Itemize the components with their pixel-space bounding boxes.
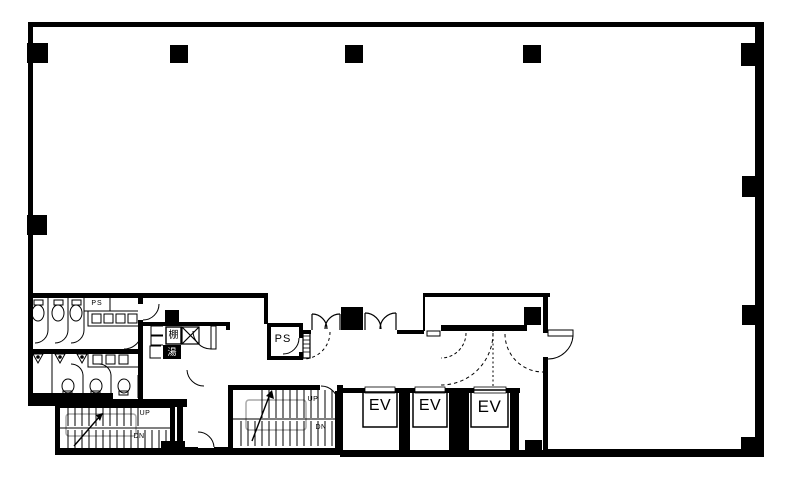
lobby-left-wall [423, 293, 425, 331]
toilet-fixtures-upper [32, 300, 82, 321]
entry-door-arc [198, 432, 214, 447]
door-jamb [427, 331, 440, 336]
sink-basin [128, 314, 137, 323]
toilet-bowl [70, 305, 82, 321]
lobby-door-swings [427, 330, 543, 388]
toilet-top-wall [28, 293, 268, 298]
main-stair-arrowhead-icon [266, 390, 274, 399]
corridor-door-opening [138, 304, 143, 320]
wall-left [28, 22, 33, 298]
main-stair-direction-arrow [252, 394, 270, 441]
ps-room-right-upper [299, 323, 303, 338]
sink-basin [92, 314, 101, 323]
main-stair-up-label: UP [303, 395, 323, 404]
corridor-door-arc [143, 304, 159, 320]
toilet-tank [54, 300, 63, 305]
kitchenette [150, 326, 216, 359]
kitchenette-door-arc [193, 331, 211, 349]
door-leaf [548, 330, 573, 336]
office-door [548, 330, 573, 359]
wall-top [28, 22, 764, 27]
door-arc [380, 313, 396, 329]
stall-door-arc [71, 330, 84, 343]
toilet-fixtures-lower [62, 379, 130, 395]
corridor-door [138, 304, 159, 320]
urinal-fixtures [33, 354, 87, 363]
column [345, 45, 363, 63]
stall-door-arc [99, 364, 111, 375]
pipe-shaft-room-label: PS [267, 330, 299, 348]
esc-stair-top-wall [55, 403, 175, 408]
column [742, 176, 756, 197]
door-arc [548, 336, 573, 359]
escape-stair-dn-label: DN [130, 432, 148, 441]
toilet-ps-label: PS [84, 297, 110, 309]
floor-plan-drawing [0, 0, 787, 501]
esc-stair-left-wall [55, 403, 60, 453]
lobby-top-wall [423, 293, 550, 297]
corridor-jog-wall [264, 297, 268, 324]
kitchenette-door-leaf [211, 326, 216, 349]
ev-bank-right-wall [510, 390, 519, 455]
wall-bottom-right [545, 449, 764, 457]
sink-basin [93, 355, 102, 364]
column [741, 437, 764, 457]
ps-room-top [267, 323, 303, 327]
lobby-counter-wall [441, 325, 527, 331]
door-arc [365, 313, 381, 329]
ev-divider-2 [449, 390, 469, 455]
sink-basin [106, 355, 115, 364]
toilet-tank [72, 300, 81, 305]
column [170, 45, 188, 63]
kitchenette-shelf-label: 棚 [166, 328, 181, 343]
elevator-3-label: EV [471, 393, 508, 419]
urinal-drain [59, 356, 62, 359]
sink-counter [88, 311, 140, 326]
stall-door-arc [71, 364, 83, 375]
column [741, 43, 764, 66]
elevator-2-label: EV [413, 394, 447, 418]
core-right-wall-upper [543, 297, 548, 333]
kitchen-cabinets [150, 326, 163, 358]
floor-plan-canvas: PS PS 棚 湯 EV EV EV UP DN UP DN [0, 0, 787, 501]
escape-stair-up-label: UP [136, 409, 154, 418]
toilet-block [32, 296, 142, 398]
kitchenette-top-wall [143, 322, 230, 326]
column [742, 305, 756, 325]
wall-right [755, 27, 764, 457]
column [525, 440, 542, 455]
ps-room-bottom [267, 356, 303, 360]
toilet-bowl [32, 305, 44, 321]
vestibule-left-wall [177, 403, 183, 449]
vestibule-doors [187, 370, 214, 447]
elevator-1-label: EV [363, 394, 397, 418]
main-stair-left-wall [228, 385, 233, 450]
main-staircase [228, 384, 343, 450]
escape-staircase [55, 403, 175, 453]
urinal-drain [81, 356, 84, 359]
ps-room-right-lower [299, 352, 303, 360]
corridor-top-right [397, 330, 424, 334]
column [165, 310, 179, 323]
urinal-drain [37, 356, 40, 359]
sink-basin [116, 314, 125, 323]
main-stair-dn-label: DN [311, 423, 331, 432]
esc-stair-right-wall [170, 403, 175, 453]
sink-basin [119, 355, 128, 364]
toilet-bowl [52, 305, 64, 321]
core-right-wall-lower [543, 357, 548, 450]
vestibule-door-arc [187, 370, 204, 386]
stall-door-arc [55, 330, 68, 343]
dashed-door-swing [441, 333, 466, 358]
column [27, 43, 48, 63]
entry-wall-left [183, 447, 198, 455]
dashed-door-swing [441, 333, 493, 385]
column [27, 215, 47, 235]
column [524, 307, 541, 325]
kitchenette-sink-label: 湯 [163, 346, 181, 359]
hatched-shutter [303, 332, 310, 358]
dashed-door-swing [505, 334, 543, 372]
ev-divider-1 [399, 390, 410, 455]
kitchenette-right-stub [226, 322, 230, 330]
column [341, 307, 363, 330]
sink-counter [88, 352, 140, 367]
toilet-tank [34, 300, 43, 305]
sink-basin [104, 314, 113, 323]
stall-door-arc [35, 330, 48, 343]
column [523, 45, 541, 63]
